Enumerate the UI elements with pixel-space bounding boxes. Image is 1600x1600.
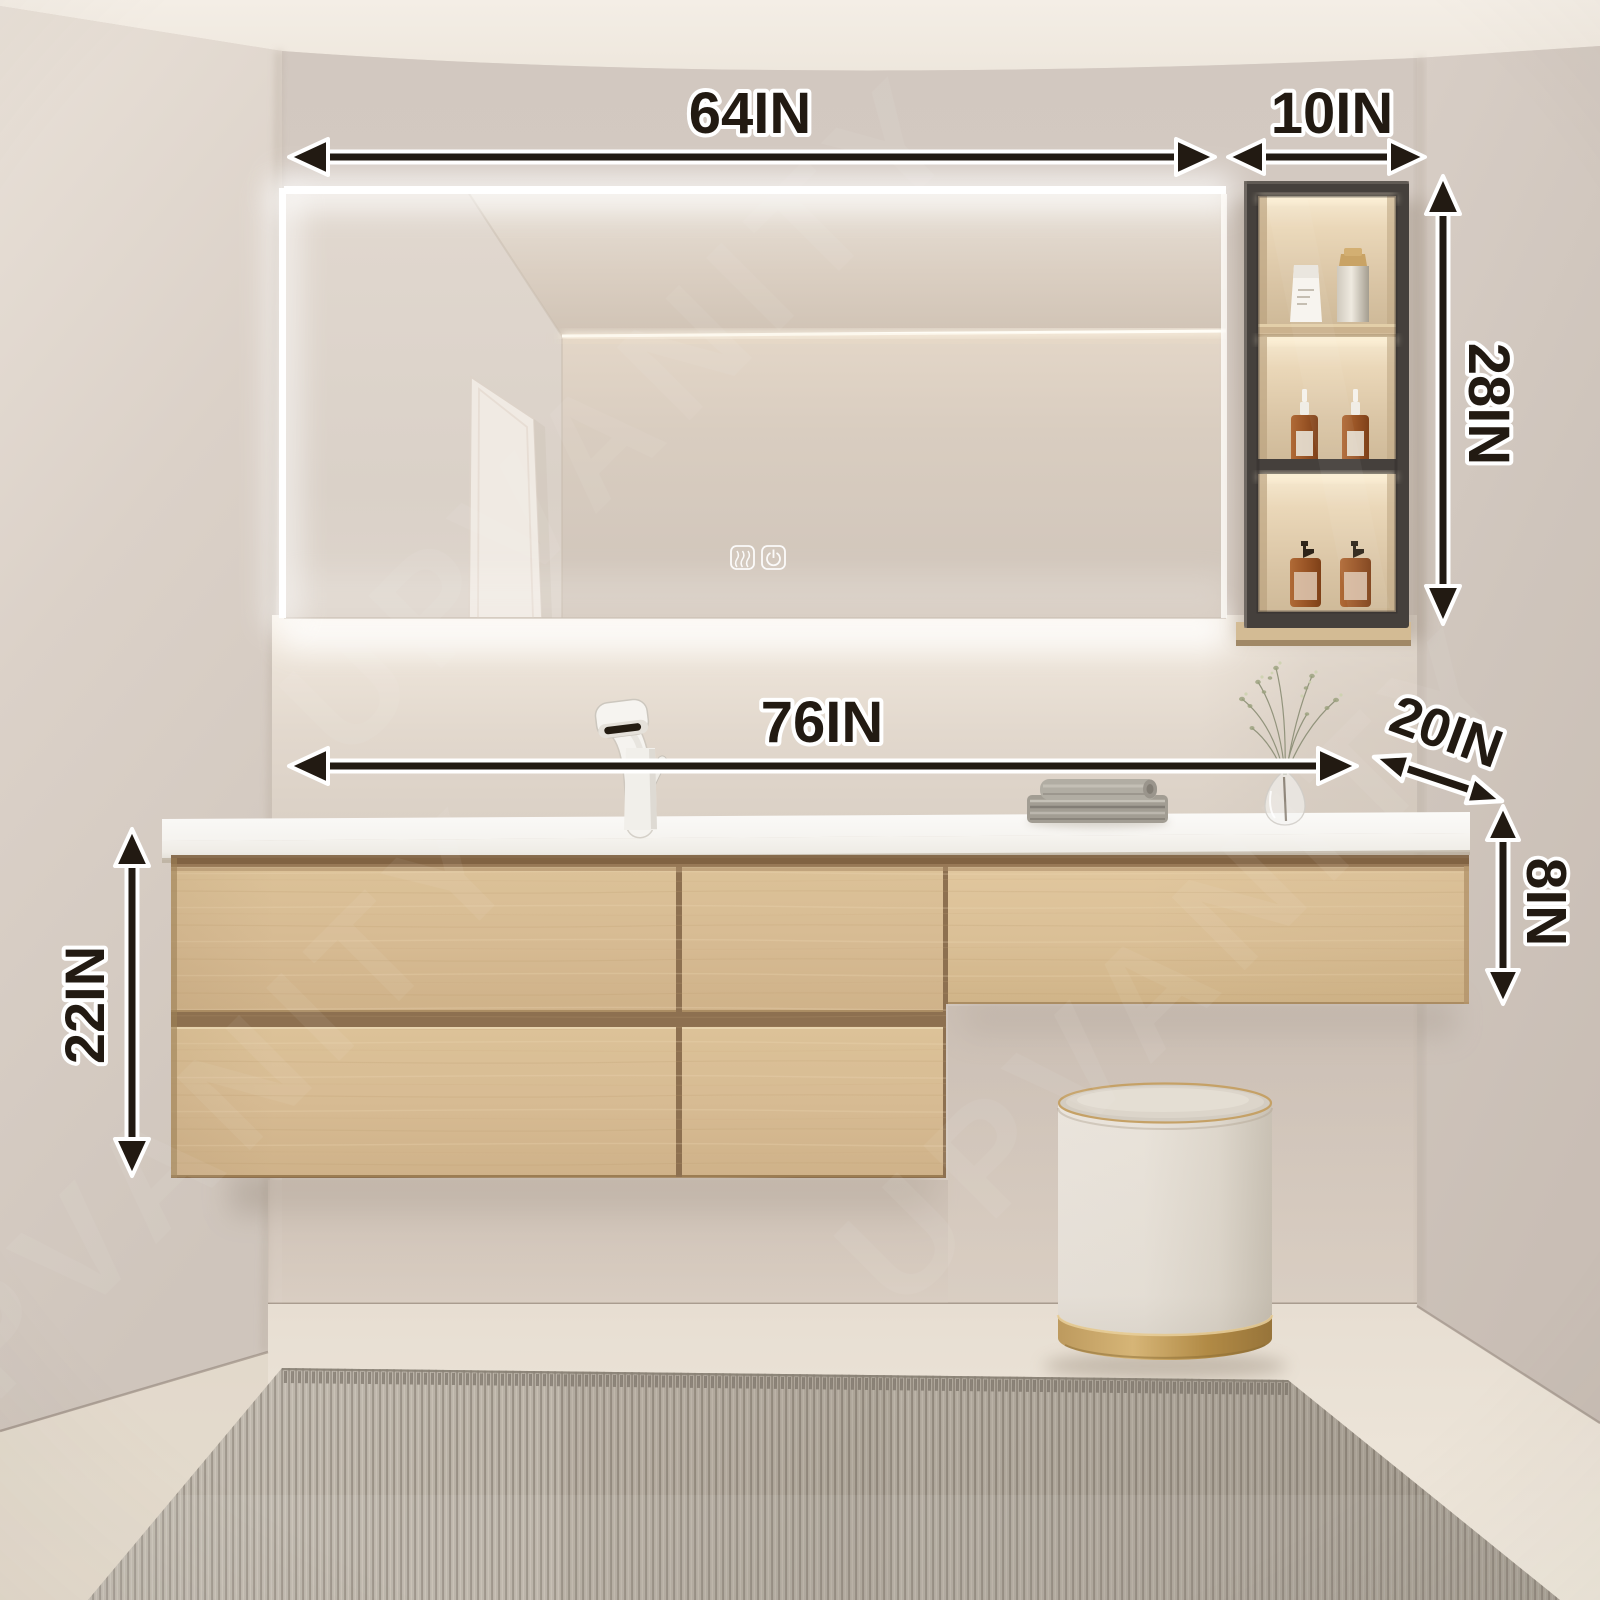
svg-text:8IN: 8IN bbox=[1514, 858, 1578, 947]
svg-text:22IN: 22IN bbox=[53, 946, 116, 1064]
svg-text:10IN: 10IN bbox=[1271, 81, 1394, 146]
svg-text:28IN: 28IN bbox=[1456, 343, 1521, 466]
svg-text:76IN: 76IN bbox=[761, 690, 884, 755]
svg-text:64IN: 64IN bbox=[689, 81, 812, 146]
